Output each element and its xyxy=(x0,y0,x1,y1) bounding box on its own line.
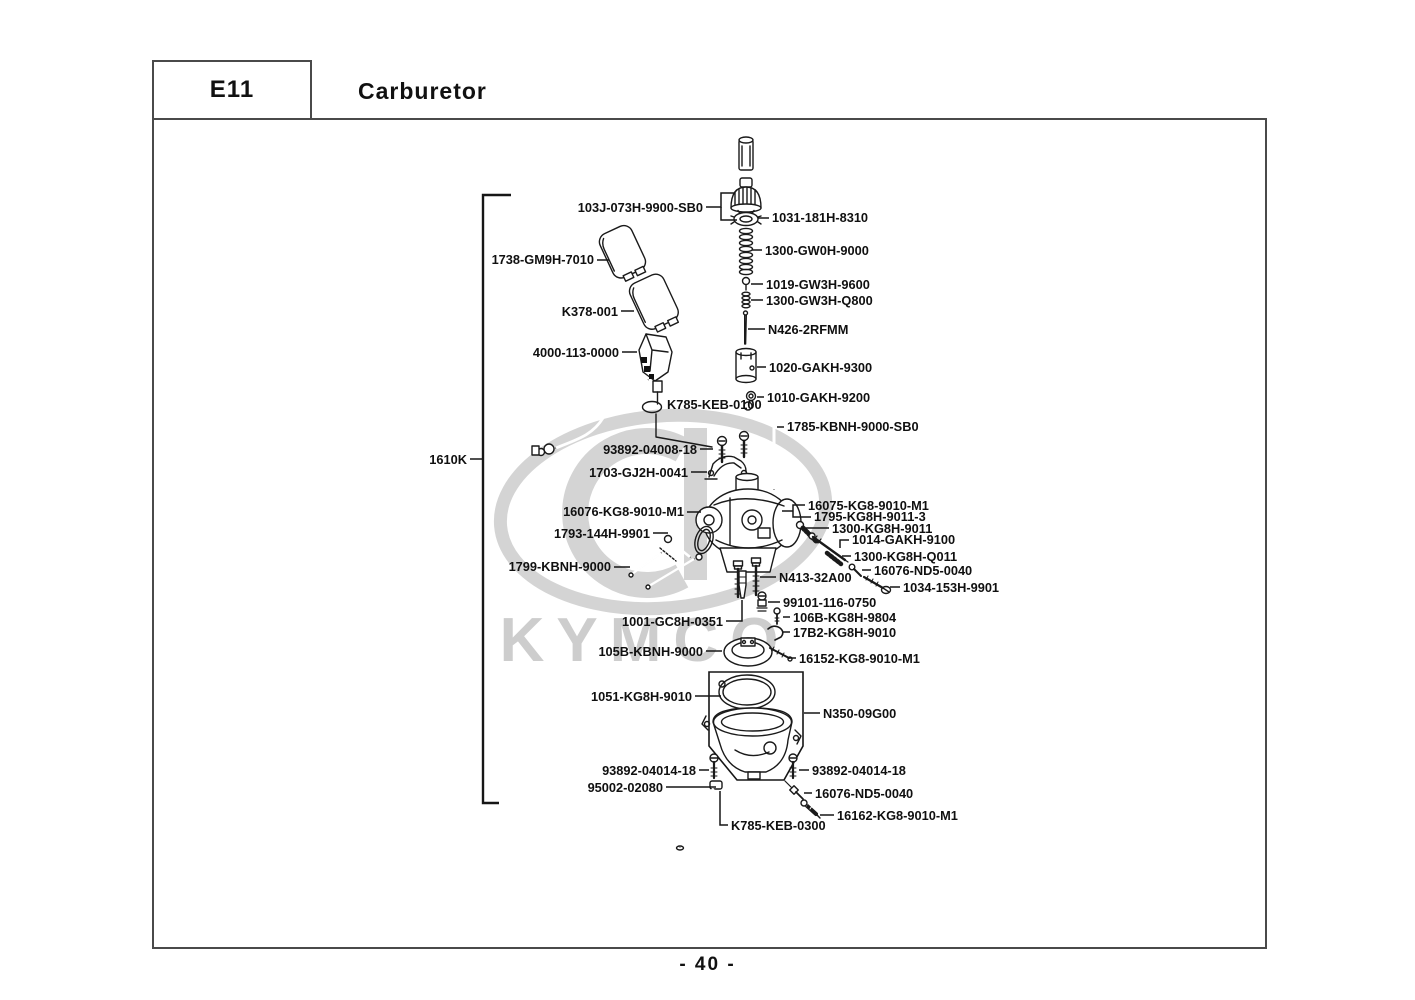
part-carburetor-body-shape xyxy=(696,474,801,573)
part-label: 93892-04008-18 xyxy=(603,442,697,457)
part-label: 1300-GW3H-Q800 xyxy=(766,293,873,308)
part-label: 1034-153H-9901 xyxy=(903,580,999,595)
catalog-page: E11 Carburetor KYMCO xyxy=(0,0,1415,1000)
part-bowl-gasket-shape xyxy=(719,675,775,709)
part-label: 1300-KG8H-Q011 xyxy=(854,549,957,564)
part-label: 1019-GW3H-9600 xyxy=(766,277,870,292)
part-label: 1051-KG8H-9010 xyxy=(591,689,692,704)
part-label: 16076-ND5-0040 xyxy=(815,786,913,801)
part-label: 1001-GC8H-0351 xyxy=(622,614,723,629)
part-float-shape xyxy=(724,638,772,666)
part-label: 1793-144H-9901 xyxy=(554,526,650,541)
part-boot-cover-2-shape xyxy=(627,271,683,336)
part-jet-needle-shape xyxy=(744,311,748,344)
part-label: 1020-GAKH-9300 xyxy=(769,360,872,375)
part-throttle-slide-shape xyxy=(736,349,756,383)
leader-line xyxy=(720,791,728,825)
part-label: 16076-ND5-0040 xyxy=(874,563,972,578)
part-lock-ring-shape xyxy=(731,211,761,226)
part-label: K785-KEB-0300 xyxy=(731,818,826,833)
part-label: 99101-116-0750 xyxy=(783,595,876,610)
part-label: 4000-113-0000 xyxy=(533,345,619,360)
part-label: 105B-KBNH-9000 xyxy=(598,644,703,659)
part-label: 1014-GAKH-9100 xyxy=(852,532,955,547)
exploded-view-diagram: KYMCO xyxy=(0,0,1415,1000)
leader-line xyxy=(706,193,734,207)
leader-line xyxy=(840,540,849,548)
part-label: 1785-KBNH-9000-SB0 xyxy=(787,419,919,434)
part-label: 1799-KBNH-9000 xyxy=(509,559,611,574)
part-label: 93892-04014-18 xyxy=(812,763,906,778)
part-knurled-cap-shape xyxy=(731,178,761,212)
part-label: 16162-KG8-9010-M1 xyxy=(837,808,958,823)
part-label: 95002-02080 xyxy=(588,780,663,795)
part-label: 16076-KG8-9010-M1 xyxy=(563,504,684,519)
part-label: 17B2-KG8H-9010 xyxy=(793,625,896,640)
part-label: 16152-KG8-9010-M1 xyxy=(799,651,920,666)
part-label: 1610K xyxy=(429,452,467,467)
part-label: K785-KEB-0100 xyxy=(667,397,762,412)
page-number: - 40 - xyxy=(0,954,1415,976)
part-spring-shape xyxy=(740,228,753,274)
part-label: N413-32A00 xyxy=(779,570,852,585)
part-boot-cover-1-shape xyxy=(596,223,650,285)
part-label: 1031-181H-8310 xyxy=(772,210,868,225)
part-label: 93892-04014-18 xyxy=(602,763,696,778)
part-label: N350-09G00 xyxy=(823,706,896,721)
part-label: 1738-GM9H-7010 xyxy=(492,252,594,267)
part-label: 1703-GJ2H-0041 xyxy=(589,465,688,480)
part-label: N426-2RFMM xyxy=(768,322,848,337)
part-label: 1300-GW0H-9000 xyxy=(765,243,869,258)
part-label: 103J-073H-9900-SB0 xyxy=(578,200,703,215)
part-cap-tube-shape xyxy=(739,137,753,170)
part-label: 1010-GAKH-9200 xyxy=(767,390,870,405)
part-label: K378-001 xyxy=(562,304,618,319)
part-drain-tube-shape xyxy=(677,781,723,850)
part-small-spring-shape xyxy=(742,292,750,308)
part-seat-washer-shape xyxy=(743,278,750,291)
part-label: 106B-KG8H-9804 xyxy=(793,610,897,625)
